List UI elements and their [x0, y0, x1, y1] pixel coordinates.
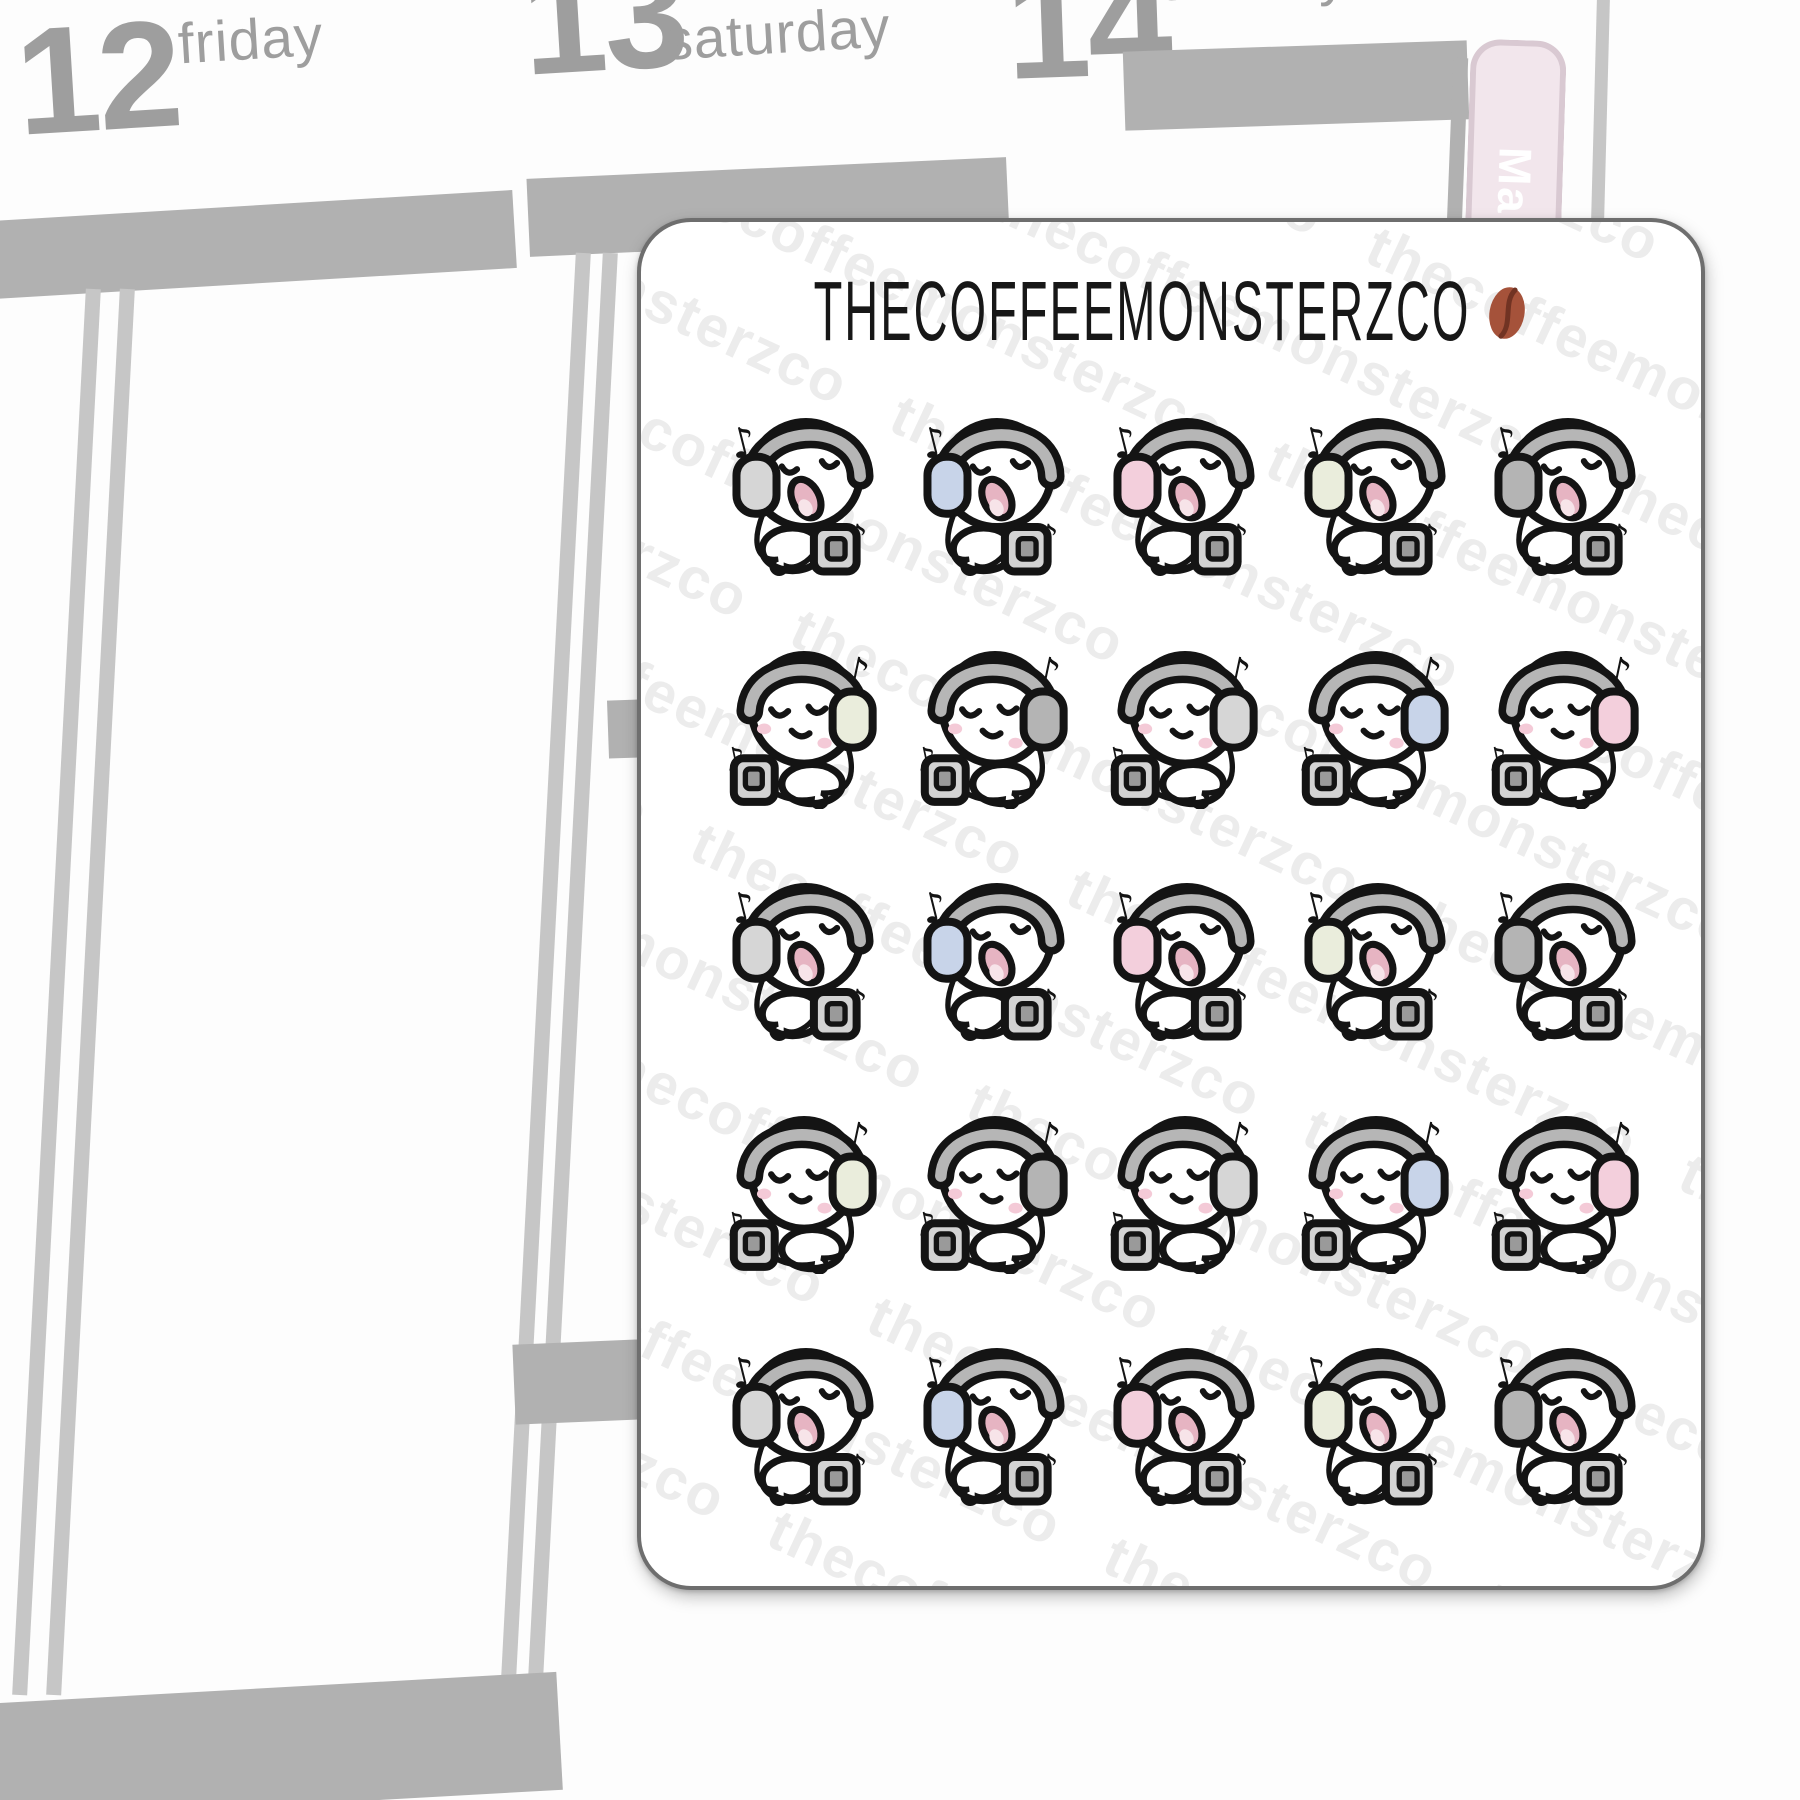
day-name-sunday: sunday — [1157, 0, 1349, 15]
day-number-12: 12 — [12, 0, 184, 159]
emoti-content-headphones-sticker — [1288, 1096, 1466, 1274]
emoti-singing-headphones-sticker — [716, 1328, 894, 1506]
brand-header: THECOFFEEMONSTERZCO — [641, 278, 1701, 342]
emoti-singing-headphones-sticker — [1288, 1328, 1466, 1506]
emoti-graphic — [1293, 646, 1446, 807]
emoti-graphic — [1483, 646, 1636, 807]
photo-stage: 12 friday 13 saturday 14 sunday Ma theco… — [0, 0, 1800, 1800]
bottom-band — [0, 1672, 563, 1800]
emoti-content-headphones-sticker — [716, 1096, 894, 1274]
emoti-graphic — [1296, 416, 1441, 573]
emoti-graphic — [1102, 1111, 1255, 1272]
emoti-graphic — [724, 416, 869, 573]
emoti-singing-headphones-sticker — [1288, 863, 1466, 1041]
emoti-graphic — [912, 1111, 1065, 1272]
emoti-content-headphones-sticker — [1097, 631, 1275, 809]
emoti-graphic — [1486, 1346, 1631, 1503]
emoti-graphic — [1105, 1346, 1250, 1503]
header-band-sunday — [1123, 40, 1469, 130]
emoti-singing-headphones-sticker — [1478, 1328, 1656, 1506]
sticker-grid — [641, 222, 1701, 1586]
emoti-singing-headphones-sticker — [716, 398, 894, 576]
emoti-graphic — [1102, 646, 1255, 807]
emoti-singing-headphones-sticker — [907, 398, 1085, 576]
month-tab-label: Ma — [1487, 146, 1543, 216]
emoti-graphic — [1105, 881, 1250, 1038]
header-band-friday — [0, 190, 517, 300]
emoti-graphic — [915, 881, 1060, 1038]
emoti-graphic — [1296, 881, 1441, 1038]
emoti-content-headphones-sticker — [907, 1096, 1085, 1274]
emoti-graphic — [915, 416, 1060, 573]
emoti-graphic — [724, 881, 869, 1038]
grid-line — [1591, 0, 1610, 230]
emoti-content-headphones-sticker — [716, 631, 894, 809]
emoti-singing-headphones-sticker — [1288, 398, 1466, 576]
day-name-friday: friday — [176, 4, 325, 78]
day-name-saturday: saturday — [662, 0, 892, 74]
emoti-graphic — [915, 1346, 1060, 1503]
emoti-content-headphones-sticker — [1288, 631, 1466, 809]
emoti-singing-headphones-sticker — [1097, 863, 1275, 1041]
emoti-graphic — [1293, 1111, 1446, 1272]
sticker-sheet: thecoffeemonsterzco thecoffeemonsterzco … — [637, 218, 1705, 1590]
coffee-bean-icon — [1486, 284, 1528, 342]
emoti-graphic — [721, 646, 874, 807]
row-band-sliver — [512, 1339, 643, 1424]
emoti-graphic — [1296, 1346, 1441, 1503]
emoti-singing-headphones-sticker — [907, 1328, 1085, 1506]
emoti-singing-headphones-sticker — [1097, 398, 1275, 576]
emoti-graphic — [724, 1346, 869, 1503]
emoti-graphic — [1105, 416, 1250, 573]
emoti-content-headphones-sticker — [1097, 1096, 1275, 1274]
emoti-singing-headphones-sticker — [1478, 863, 1656, 1041]
emoti-singing-headphones-sticker — [716, 863, 894, 1041]
emoti-graphic — [1486, 881, 1631, 1038]
emoti-graphic — [721, 1111, 874, 1272]
brand-title: THECOFFEEMONSTERZCO — [814, 261, 1471, 360]
emoti-content-headphones-sticker — [907, 631, 1085, 809]
emoti-singing-headphones-sticker — [1097, 1328, 1275, 1506]
emoti-graphic — [912, 646, 1065, 807]
emoti-graphic — [1486, 416, 1631, 573]
emoti-singing-headphones-sticker — [1478, 398, 1656, 576]
emoti-graphic — [1483, 1111, 1636, 1272]
month-tab: Ma — [1465, 39, 1567, 237]
emoti-content-headphones-sticker — [1478, 631, 1656, 809]
row-band-sliver — [607, 699, 641, 758]
emoti-singing-headphones-sticker — [907, 863, 1085, 1041]
emoti-content-headphones-sticker — [1478, 1096, 1656, 1274]
